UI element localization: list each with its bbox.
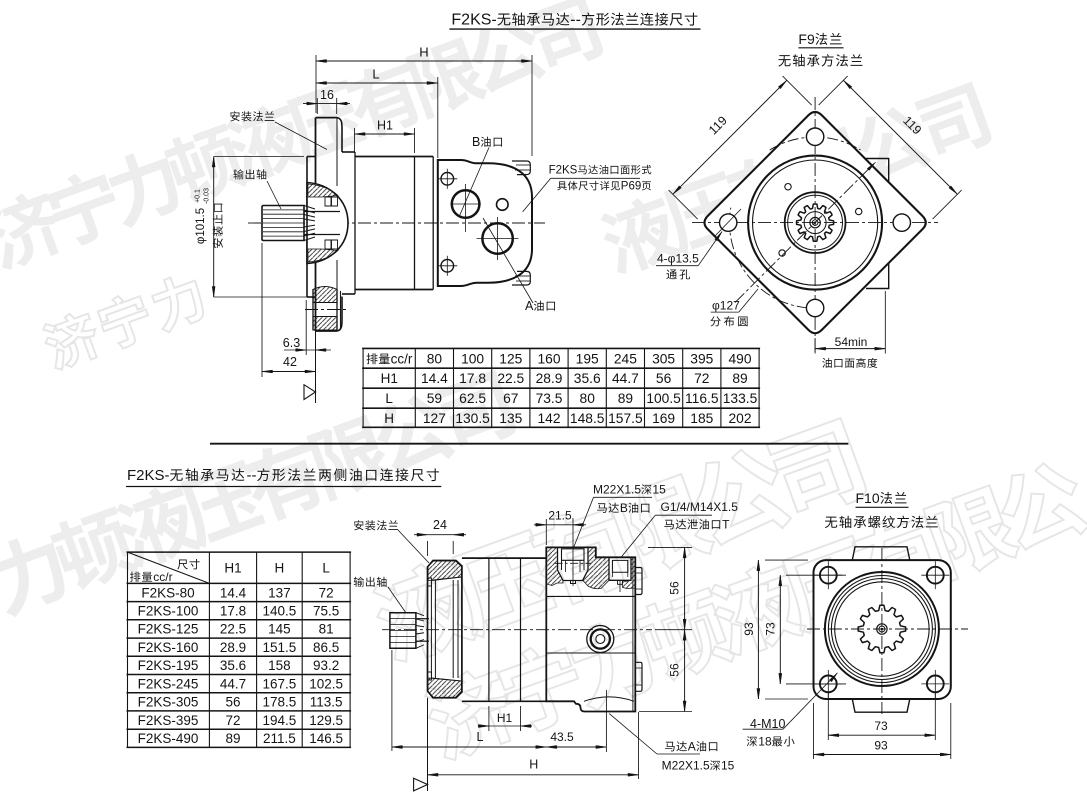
- svg-text:116.5: 116.5: [685, 391, 719, 406]
- svg-text:H: H: [529, 758, 538, 772]
- svg-text:22.5: 22.5: [220, 622, 246, 637]
- svg-text:φ127: φ127: [712, 299, 740, 313]
- svg-text:59: 59: [427, 391, 443, 406]
- svg-text:100.5: 100.5: [646, 391, 681, 406]
- svg-text:F2KS-305: F2KS-305: [138, 695, 199, 710]
- svg-text:L: L: [385, 391, 393, 406]
- svg-text:F2KS-80: F2KS-80: [141, 585, 194, 600]
- svg-text:14.4: 14.4: [220, 585, 247, 600]
- svg-text:67: 67: [503, 391, 518, 406]
- svg-text:H1: H1: [381, 371, 398, 386]
- svg-text:490: 490: [728, 351, 751, 366]
- svg-text:14.4: 14.4: [421, 371, 448, 386]
- svg-text:178.5: 178.5: [263, 695, 297, 710]
- svg-text:167.5: 167.5: [263, 676, 297, 691]
- svg-text:56: 56: [668, 581, 682, 595]
- svg-text:A: A: [688, 740, 696, 754]
- svg-text:H: H: [419, 45, 428, 60]
- svg-text:100: 100: [461, 351, 484, 366]
- svg-text:F2KS-125: F2KS-125: [138, 622, 199, 637]
- svg-text:18: 18: [758, 735, 772, 749]
- svg-text:22.5: 22.5: [497, 371, 524, 386]
- svg-text:56: 56: [656, 371, 672, 386]
- svg-text:15: 15: [721, 759, 735, 773]
- svg-text:151.5: 151.5: [263, 640, 297, 655]
- svg-text:135: 135: [499, 411, 522, 426]
- svg-text:M22X1.5: M22X1.5: [593, 483, 641, 497]
- svg-text:89: 89: [225, 731, 240, 746]
- svg-text:F2KS-245: F2KS-245: [138, 676, 199, 691]
- svg-text:42: 42: [283, 355, 297, 369]
- svg-text:73: 73: [874, 719, 888, 733]
- svg-text:54min: 54min: [835, 335, 868, 349]
- svg-text:93: 93: [874, 739, 888, 753]
- svg-text:56: 56: [668, 663, 682, 677]
- svg-text:21.5: 21.5: [548, 509, 572, 523]
- svg-text:195: 195: [576, 351, 599, 366]
- svg-text:17.8: 17.8: [220, 604, 246, 619]
- svg-text:F2KS-395: F2KS-395: [138, 713, 199, 728]
- svg-text:245: 245: [614, 351, 637, 366]
- svg-text:127: 127: [423, 411, 446, 426]
- svg-text:cc/r: cc/r: [153, 570, 172, 584]
- svg-text:133.5: 133.5: [723, 391, 758, 406]
- svg-text:cc/r: cc/r: [391, 351, 413, 366]
- svg-text:305: 305: [652, 351, 675, 366]
- svg-text:4-φ13.5: 4-φ13.5: [657, 252, 699, 266]
- svg-text:148.5: 148.5: [570, 411, 605, 426]
- svg-text:24: 24: [433, 518, 447, 532]
- svg-text:H: H: [384, 411, 394, 426]
- svg-text:158: 158: [268, 658, 291, 673]
- svg-text:73.5: 73.5: [536, 391, 563, 406]
- svg-text:--: --: [570, 12, 581, 29]
- svg-text:72: 72: [694, 371, 709, 386]
- svg-text:130.5: 130.5: [455, 411, 490, 426]
- svg-text:15: 15: [652, 483, 666, 497]
- svg-text:113.5: 113.5: [310, 695, 343, 710]
- svg-text:35.6: 35.6: [220, 658, 246, 673]
- svg-text:16: 16: [320, 88, 334, 102]
- svg-text:80: 80: [580, 391, 596, 406]
- svg-text:146.5: 146.5: [309, 731, 343, 746]
- svg-text:73: 73: [764, 622, 778, 636]
- svg-text:17.8: 17.8: [459, 371, 486, 386]
- svg-text:H1: H1: [377, 119, 393, 133]
- svg-text:F2KS-100: F2KS-100: [138, 604, 199, 619]
- svg-text:81: 81: [319, 622, 334, 637]
- svg-text:56: 56: [225, 695, 240, 710]
- svg-text:194.5: 194.5: [263, 713, 297, 728]
- svg-text:F9: F9: [798, 31, 815, 47]
- svg-text:142: 142: [537, 411, 560, 426]
- svg-text:75.5: 75.5: [313, 604, 339, 619]
- svg-text:137: 137: [268, 585, 291, 600]
- svg-text:102.5: 102.5: [309, 676, 343, 691]
- svg-text:160: 160: [537, 351, 560, 366]
- svg-text:F2KS-: F2KS-: [127, 467, 170, 484]
- svg-text:129.5: 129.5: [309, 713, 343, 728]
- svg-text:395: 395: [690, 351, 713, 366]
- svg-text:T: T: [722, 518, 730, 532]
- svg-text:86.5: 86.5: [313, 640, 339, 655]
- svg-text:H1: H1: [224, 561, 241, 576]
- svg-text:28.9: 28.9: [220, 640, 246, 655]
- svg-text:F2KS-160: F2KS-160: [138, 640, 199, 655]
- svg-text:125: 125: [499, 351, 522, 366]
- svg-text:φ101.5: φ101.5: [195, 208, 207, 244]
- svg-text:44.7: 44.7: [220, 676, 246, 691]
- svg-text:+0.1: +0.1: [195, 189, 202, 203]
- svg-text:169: 169: [652, 411, 675, 426]
- svg-text:F2KS-490: F2KS-490: [138, 731, 199, 746]
- svg-text:B: B: [620, 501, 628, 515]
- svg-text:G1/4/M14X1.5: G1/4/M14X1.5: [661, 500, 739, 514]
- svg-text:H: H: [275, 561, 285, 576]
- svg-text:28.9: 28.9: [536, 371, 563, 386]
- svg-text:72: 72: [319, 585, 334, 600]
- svg-text:F2KS-195: F2KS-195: [138, 658, 199, 673]
- svg-text:44.7: 44.7: [612, 371, 639, 386]
- svg-text:140.5: 140.5: [263, 604, 297, 619]
- svg-text:L: L: [322, 561, 330, 576]
- svg-text:145: 145: [268, 622, 291, 637]
- svg-text:72: 72: [225, 713, 240, 728]
- svg-text:89: 89: [732, 371, 748, 386]
- svg-text:62.5: 62.5: [459, 391, 486, 406]
- svg-text:H1: H1: [497, 711, 513, 725]
- svg-text:157.5: 157.5: [608, 411, 643, 426]
- svg-text:A: A: [525, 299, 534, 313]
- svg-text:43.5: 43.5: [550, 730, 574, 744]
- svg-text:211.5: 211.5: [263, 731, 296, 746]
- svg-text:F10: F10: [856, 490, 880, 506]
- svg-text:80: 80: [427, 351, 443, 366]
- svg-text:L: L: [477, 730, 484, 744]
- svg-text:93.2: 93.2: [313, 658, 339, 673]
- svg-text:--: --: [247, 467, 257, 484]
- svg-text:F2KS-: F2KS-: [451, 12, 496, 29]
- svg-text:202: 202: [728, 411, 751, 426]
- svg-text:35.6: 35.6: [574, 371, 601, 386]
- svg-text:93: 93: [742, 622, 756, 636]
- svg-text:B: B: [472, 135, 480, 149]
- svg-text:-0.03: -0.03: [204, 188, 211, 204]
- svg-text:6.3: 6.3: [283, 336, 300, 350]
- svg-text:P69: P69: [621, 181, 641, 193]
- svg-text:M22X1.5: M22X1.5: [662, 759, 710, 773]
- svg-text:185: 185: [690, 411, 713, 426]
- svg-text:L: L: [372, 67, 379, 82]
- svg-text:F2KS: F2KS: [549, 165, 578, 177]
- svg-text:89: 89: [618, 391, 634, 406]
